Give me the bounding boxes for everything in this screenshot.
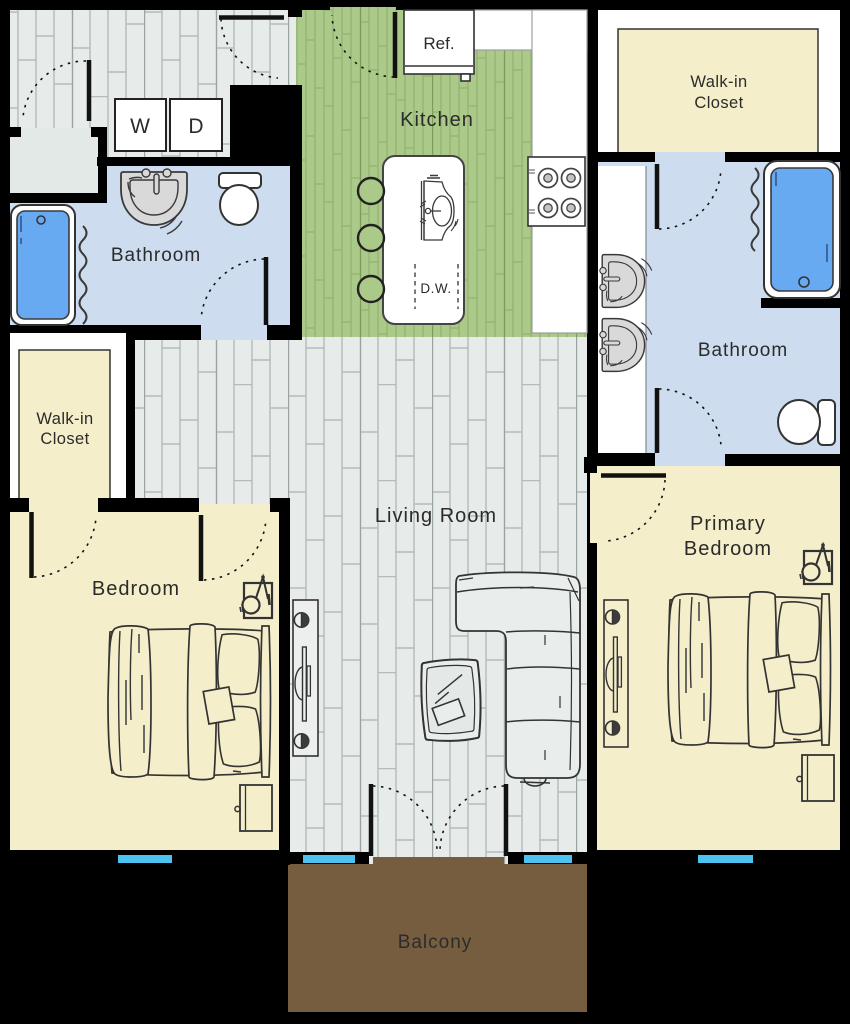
svg-text:W: W: [130, 115, 150, 138]
svg-text:Bathroom: Bathroom: [698, 340, 788, 361]
svg-text:Bathroom: Bathroom: [111, 245, 201, 266]
svg-text:Bedroom: Bedroom: [92, 578, 180, 600]
svg-text:Bedroom: Bedroom: [684, 538, 772, 560]
svg-text:Closet: Closet: [694, 94, 743, 112]
svg-text:Living Room: Living Room: [375, 505, 497, 527]
svg-text:Primary: Primary: [690, 513, 766, 535]
svg-text:D: D: [188, 115, 203, 138]
svg-text:Walk-in: Walk-in: [690, 73, 747, 91]
svg-text:Ref.: Ref.: [423, 34, 454, 53]
svg-text:D.W.: D.W.: [420, 281, 451, 296]
svg-text:Closet: Closet: [40, 430, 89, 448]
svg-text:Walk-in: Walk-in: [36, 410, 93, 428]
svg-text:Kitchen: Kitchen: [400, 109, 474, 131]
svg-text:Balcony: Balcony: [398, 932, 473, 953]
